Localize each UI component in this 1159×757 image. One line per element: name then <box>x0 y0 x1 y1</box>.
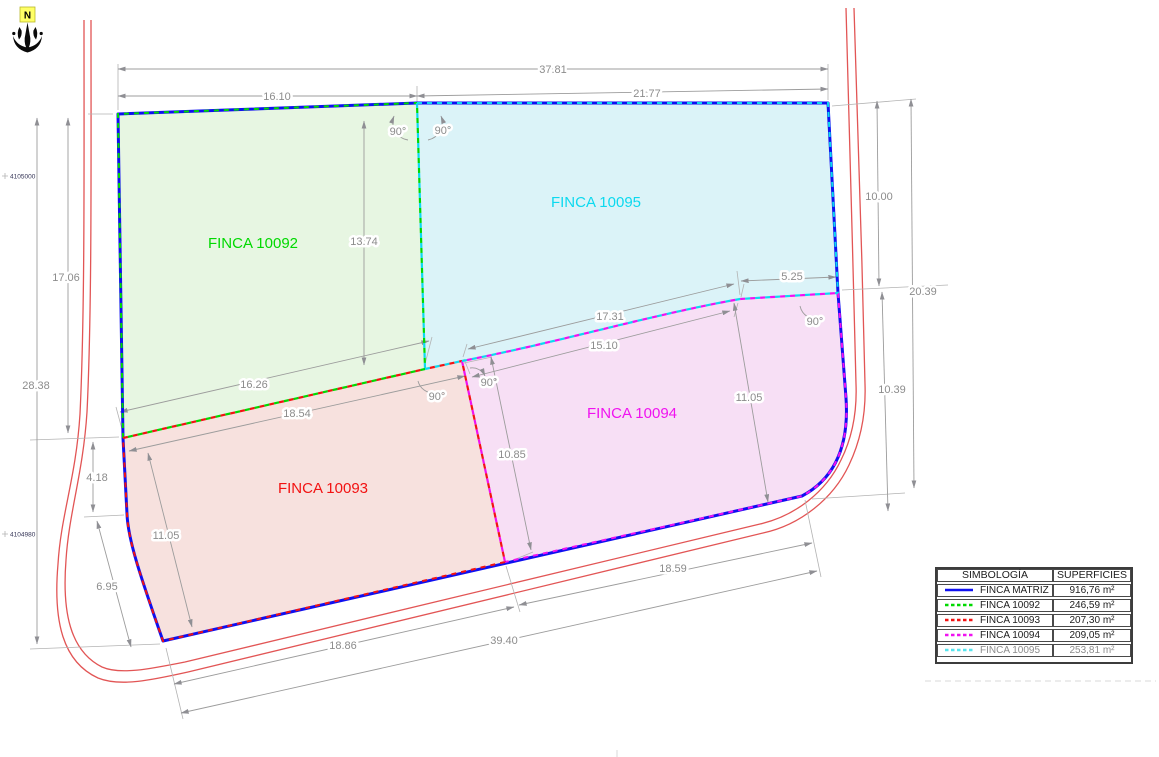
legend-row-10092: FINCA 10092 246,59 m² <box>937 599 1131 612</box>
legend-row-area: 916,76 m² <box>1053 584 1131 597</box>
legend-header-row: SIMBOLOGÍA SUPERFICIES <box>937 569 1131 582</box>
legend-row-name: FINCA 10094 <box>980 630 1040 641</box>
legend-header-area: SUPERFICIES <box>1053 569 1131 582</box>
legend-row-10095: FINCA 10095 253,81 m² <box>937 644 1131 657</box>
dim-label-bottom-total: 39.40 <box>490 635 518 647</box>
dim-label-green-red-upper: 16.26 <box>240 379 268 391</box>
legend-table: SIMBOLOGÍA SUPERFICIES FINCA MATRIZ 916,… <box>935 567 1133 664</box>
angle-label: 90° <box>435 125 452 137</box>
north-arrow-icon: N <box>12 7 43 53</box>
dim-label-right-total: 20.39 <box>909 286 937 298</box>
legend-swatch-10093 <box>944 617 974 623</box>
angle-label: 90° <box>807 316 824 328</box>
dim-label-top-total: 37.81 <box>539 64 567 76</box>
legend-row-area: 209,05 m² <box>1053 629 1131 642</box>
angle-label: 90° <box>429 391 446 403</box>
dim-label-left-total: 28.38 <box>22 380 50 392</box>
legend-swatch-10092 <box>944 602 974 608</box>
parcel-10094-label: FINCA 10094 <box>587 405 677 422</box>
dim-label-p94-height: 11.05 <box>736 392 763 404</box>
dim-label-left-lower: 6.95 <box>96 581 117 593</box>
legend-row-name: FINCA 10095 <box>980 645 1040 656</box>
dim-label-green-red-lower: 18.54 <box>283 408 311 420</box>
dim-label-divider-93-94: 10.85 <box>498 449 526 461</box>
legend-row-area: 253,81 m² <box>1053 644 1131 657</box>
dim-label-top-left: 16.10 <box>263 91 291 103</box>
legend-row-10093: FINCA 10093 207,30 m² <box>937 614 1131 627</box>
legend-row-area: 207,30 m² <box>1053 614 1131 627</box>
site-plan-page: 37.81 16.10 21.77 17.06 28.38 4.18 6.95 … <box>0 0 1159 757</box>
angle-label: 90° <box>481 377 498 389</box>
legend-swatch-matriz <box>944 587 974 593</box>
dim-label-mid-upper: 17.31 <box>596 311 624 323</box>
dim-label-right-lower: 10.39 <box>878 384 906 396</box>
parcel-10095-label: FINCA 10095 <box>551 194 641 211</box>
dim-label-left-small: 4.18 <box>86 472 107 484</box>
legend-swatch-10095 <box>944 647 974 653</box>
dim-label-p93-height: 11.05 <box>153 530 180 542</box>
legend-row-name: FINCA 10093 <box>980 615 1040 626</box>
dim-label-mid-lower: 15.10 <box>590 340 618 352</box>
legend-header-symbol: SIMBOLOGÍA <box>937 569 1053 582</box>
dim-label-divider-92-95: 13.74 <box>350 236 378 248</box>
dim-label-right-offset: 5.25 <box>781 271 802 283</box>
faint-frame-marks <box>617 681 1156 757</box>
north-label: N <box>24 11 31 22</box>
dim-label-bottom-right: 18.59 <box>659 563 687 575</box>
angle-label: 90° <box>390 126 407 138</box>
dim-label-top-right: 21.77 <box>633 88 661 100</box>
legend-row-name: FINCA 10092 <box>980 600 1040 611</box>
parcel-10093-label: FINCA 10093 <box>278 480 368 497</box>
legend-row-name: FINCA MATRIZ <box>980 585 1049 596</box>
dim-label-right-upper: 10.00 <box>865 191 893 203</box>
dim-label-bottom-left: 18.86 <box>329 640 357 652</box>
parcel-10092-label: FINCA 10092 <box>208 235 298 252</box>
coord-label-bottom: 4104980 <box>10 532 36 539</box>
legend-row-10094: FINCA 10094 209,05 m² <box>937 629 1131 642</box>
legend-row-area: 246,59 m² <box>1053 599 1131 612</box>
dim-label-left-upper: 17.06 <box>52 272 80 284</box>
legend-swatch-10094 <box>944 632 974 638</box>
legend-row-matriz: FINCA MATRIZ 916,76 m² <box>937 584 1131 597</box>
coord-label-top: 4105000 <box>10 174 36 181</box>
coordinate-ticks: 4105000 4104980 <box>2 173 36 539</box>
